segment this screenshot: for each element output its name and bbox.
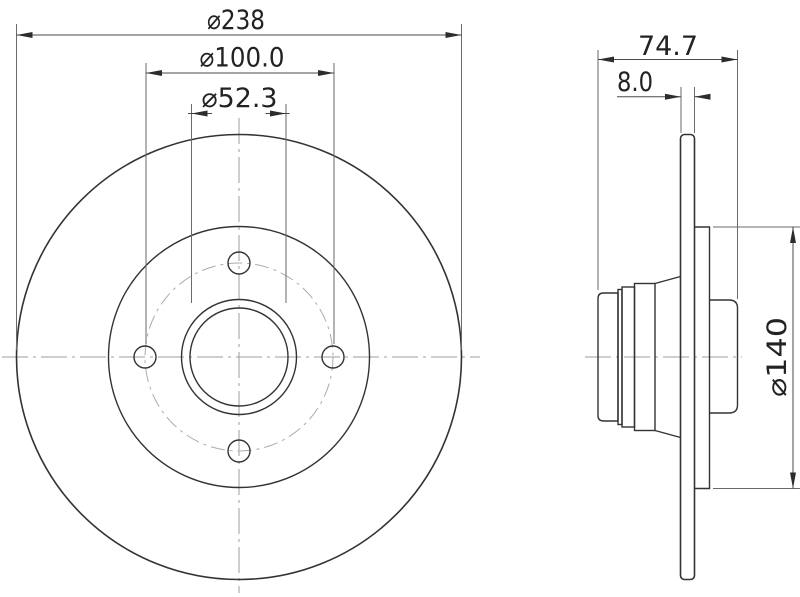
arrowhead-right <box>695 94 711 100</box>
dimension-text-total-width: 74.7 <box>638 31 698 62</box>
dimension-text-disc-thickness: 8.0 <box>617 67 653 98</box>
dimension-text-center-bore: ⌀52.3 <box>202 83 278 114</box>
arrowhead-left <box>598 57 614 63</box>
arrowhead-right <box>318 70 334 76</box>
dimension-hat-diameter: ⌀140 <box>713 227 800 489</box>
arrowhead-top <box>790 227 796 243</box>
drawing-svg: ⌀238 ⌀100.0 ⌀52.3 74.7 8.0 <box>0 0 800 597</box>
arrowhead-bottom <box>790 473 796 489</box>
hat-ring-step <box>695 227 710 489</box>
centerlines <box>2 118 742 593</box>
dimension-disc-thickness: 8.0 <box>617 67 711 133</box>
dimension-text-outer-diameter: ⌀238 <box>207 5 265 36</box>
arrowhead-right <box>722 57 738 63</box>
brake-disc-technical-drawing: ⌀238 ⌀100.0 ⌀52.3 74.7 8.0 <box>0 0 800 597</box>
arrowhead-left <box>17 32 33 38</box>
arrowhead-left <box>146 70 162 76</box>
dimension-text-hat-diameter: ⌀140 <box>762 317 793 397</box>
hub-cone-top-edge <box>655 277 681 284</box>
dimension-text-bolt-circle: ⌀100.0 <box>200 43 285 74</box>
arrowhead-left <box>665 94 681 100</box>
hub-cone-bottom-edge <box>655 431 681 438</box>
arrowhead-right <box>446 32 462 38</box>
